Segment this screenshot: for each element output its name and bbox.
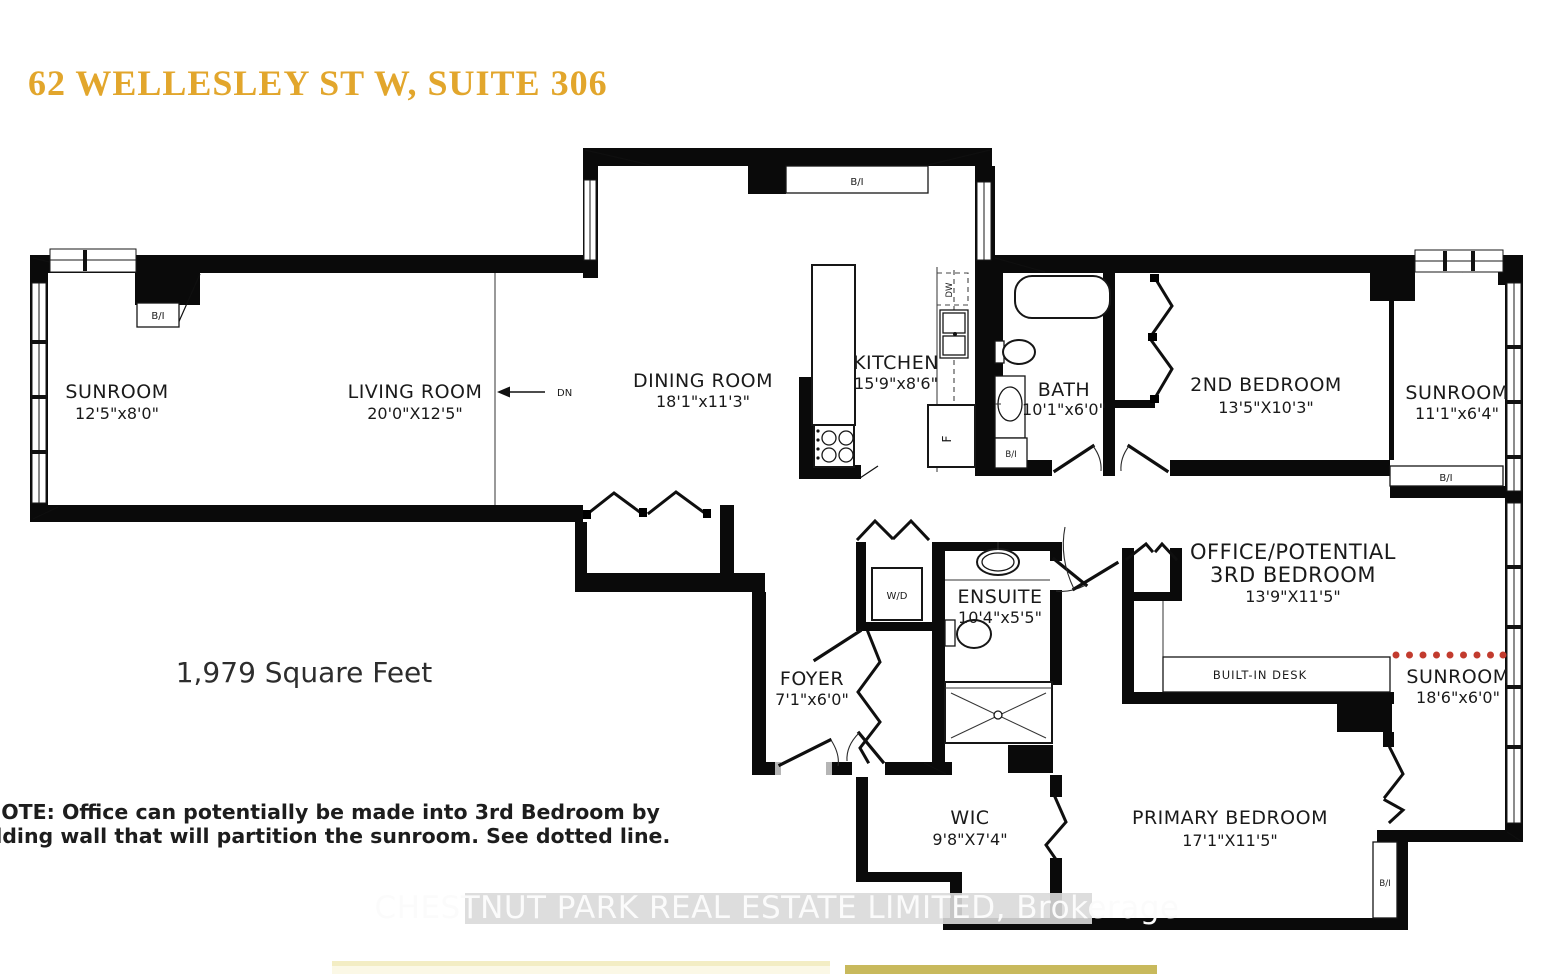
room-dims-bath: 10'1"x6'0" bbox=[1022, 400, 1106, 419]
room-label-wic: WIC bbox=[950, 807, 989, 829]
kitchen-island bbox=[812, 265, 855, 425]
room-dims-second-bedroom: 13'5"X10'3" bbox=[1218, 398, 1314, 417]
built-in-label-living: B/I bbox=[151, 311, 164, 322]
room-label-ensuite: ENSUITE bbox=[958, 586, 1043, 608]
stove-icon bbox=[814, 425, 854, 467]
floor-plan-svg: SUNROOM 12'5"x8'0" LIVING ROOM 20'0"X12'… bbox=[0, 0, 1559, 974]
note-line2: adding wall that will partition the sunr… bbox=[0, 824, 670, 848]
room-dims-office: 13'9"X11'5" bbox=[1245, 587, 1341, 606]
bathtub-icon bbox=[1015, 276, 1110, 318]
room-dims-ensuite: 10'4"x5'5" bbox=[958, 608, 1042, 627]
windows bbox=[32, 180, 1521, 823]
room-label-sunroom-left: SUNROOM bbox=[65, 381, 168, 403]
room-dims-sunroom-left: 12'5"x8'0" bbox=[75, 404, 159, 423]
window-dining-left bbox=[584, 180, 596, 260]
shower-icon bbox=[945, 682, 1052, 743]
kitchen-sink-icon bbox=[940, 310, 968, 358]
toilet-icon-bath bbox=[995, 340, 1035, 364]
washer-dryer-label: W/D bbox=[887, 591, 908, 602]
room-label-second-bedroom: 2ND BEDROOM bbox=[1190, 374, 1342, 396]
window-left-wall bbox=[32, 283, 46, 503]
accent-bar-light bbox=[332, 961, 830, 966]
room-dims-dining-room: 18'1"x11'3" bbox=[656, 392, 750, 411]
bottom-accent-bars bbox=[332, 961, 1157, 974]
fridge-label: F bbox=[940, 435, 954, 442]
room-label-primary-bedroom: PRIMARY BEDROOM bbox=[1132, 807, 1328, 829]
room-label-office-line1: OFFICE/POTENTIAL bbox=[1190, 540, 1396, 564]
room-dims-sunroom-bottom: 18'6"x6'0" bbox=[1416, 688, 1500, 707]
window-right-wall-lower bbox=[1507, 503, 1521, 823]
dotted-partition-line bbox=[1393, 652, 1507, 659]
room-label-sunroom-bottom: SUNROOM bbox=[1406, 666, 1509, 688]
window-top-left bbox=[50, 249, 136, 272]
room-label-office-line2: 3RD BEDROOM bbox=[1210, 563, 1376, 587]
built-in-label-sunroom-right: B/I bbox=[1439, 473, 1452, 484]
room-label-bath: BATH bbox=[1038, 379, 1090, 401]
built-in-label-kitchen: B/I bbox=[850, 177, 863, 188]
window-right-wall-upper bbox=[1507, 283, 1521, 491]
down-label: DN bbox=[557, 388, 572, 399]
room-dims-wic: 9'8"X7'4" bbox=[932, 830, 1007, 849]
room-label-foyer: FOYER bbox=[780, 668, 844, 690]
floor-plan-page: 62 WELLESLEY ST W, SUITE 306 bbox=[0, 0, 1559, 974]
built-in-desk-label: BUILT-IN DESK bbox=[1213, 668, 1307, 682]
window-sunroom-top bbox=[1415, 250, 1503, 272]
watermark-text: CHESTNUT PARK REAL ESTATE LIMITED, Broke… bbox=[374, 890, 1179, 926]
dishwasher-label: DW bbox=[945, 282, 955, 298]
room-dims-living-room: 20'0"X12'5" bbox=[367, 404, 463, 423]
room-dims-primary-bedroom: 17'1"X11'5" bbox=[1182, 831, 1278, 850]
room-dims-kitchen: 15'9"x8'6" bbox=[854, 374, 938, 393]
room-label-sunroom-right: SUNROOM bbox=[1405, 382, 1508, 404]
room-dims-sunroom-right: 11'1"x6'4" bbox=[1415, 404, 1499, 423]
window-kitchen-right bbox=[977, 182, 991, 260]
room-label-kitchen: KITCHEN bbox=[853, 352, 939, 374]
accent-bar-gold bbox=[845, 965, 1157, 974]
room-label-living-room: LIVING ROOM bbox=[348, 381, 483, 403]
square-footage: 1,979 Square Feet bbox=[176, 656, 433, 689]
bath-sink-icon bbox=[995, 376, 1025, 438]
down-arrow bbox=[495, 273, 545, 505]
built-in-label-primary: B/I bbox=[1379, 879, 1390, 889]
room-label-dining-room: DINING ROOM bbox=[633, 370, 773, 392]
built-in-label-bath: B/I bbox=[1005, 450, 1016, 460]
wall-bevels bbox=[33, 150, 1521, 841]
room-dims-foyer: 7'1"x6'0" bbox=[775, 690, 849, 709]
watermark: CHESTNUT PARK REAL ESTATE LIMITED, Broke… bbox=[374, 890, 1179, 926]
note-line1: NOTE: Office can potentially be made int… bbox=[0, 800, 660, 824]
